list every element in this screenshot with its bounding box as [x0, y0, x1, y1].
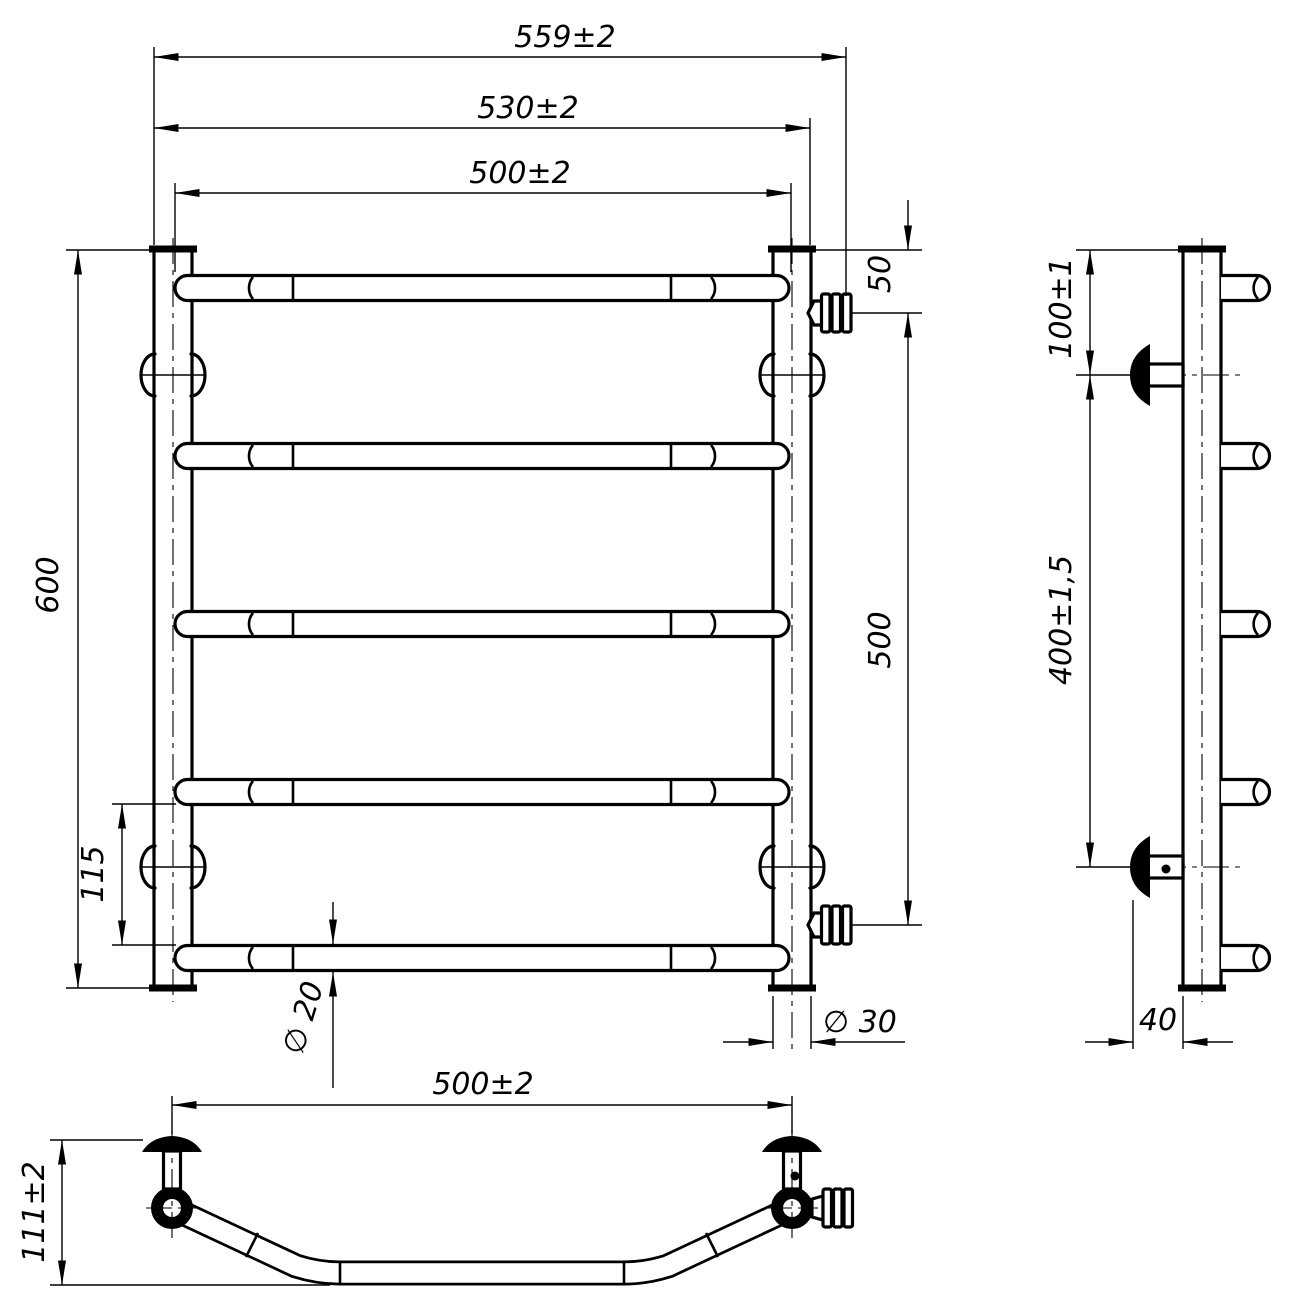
- dim-rung-length: 500±2: [175, 156, 791, 272]
- supply-valve-top-view: [812, 1189, 853, 1227]
- rung-4: [175, 780, 789, 805]
- rung-stub-1: [1221, 276, 1270, 301]
- wall-bracket-bottom: [1130, 836, 1183, 898]
- dim-valve-spacing: 500: [852, 313, 922, 925]
- dim-label-mount-width: 530±2: [477, 91, 578, 126]
- dim-label-bracket-span: 500±2: [432, 1067, 533, 1102]
- dim-post-diameter: ∅ 30: [723, 996, 905, 1049]
- technical-drawing: 559±2 530±2 500±2 600 115: [0, 0, 1300, 1300]
- front-view: [140, 238, 851, 1052]
- dim-label-valve-top-offset: 50: [863, 255, 898, 293]
- dim-label-rung-diameter: ∅ 20: [276, 977, 331, 1058]
- rung-stub-4: [1221, 780, 1270, 805]
- dim-label-post-diameter: ∅ 30: [823, 1005, 897, 1040]
- left-post-bottom-cap: [149, 985, 197, 992]
- dim-label-depth: 111±2: [17, 1161, 52, 1262]
- dim-label-bracket-top-offset: 100±1: [1044, 257, 1079, 358]
- dim-bracket-top-offset: 100±1: [1044, 250, 1179, 375]
- side-post-bottom-cap: [1178, 985, 1226, 992]
- dim-label-valve-spacing: 500: [863, 611, 898, 668]
- rung-1: [175, 276, 789, 301]
- bracket-screw: [1162, 865, 1171, 874]
- rung-stub-2: [1221, 444, 1270, 469]
- right-post-bottom-cap: [768, 985, 816, 992]
- supply-valve-top: [808, 294, 851, 332]
- wall-bracket-top: [1130, 344, 1183, 406]
- dim-label-bracket-depth: 40: [1139, 1003, 1177, 1038]
- dim-label-bottom-gap: 115: [76, 845, 111, 902]
- right-post-top-cap: [768, 246, 816, 253]
- dim-label-bracket-spacing: 400±1,5: [1044, 555, 1079, 685]
- side-post-top-cap: [1178, 246, 1226, 253]
- rung-2: [175, 444, 789, 469]
- supply-valve-bottom: [808, 906, 851, 944]
- dim-label-overall-width: 559±2: [514, 20, 615, 55]
- dim-label-rung-length: 500±2: [469, 156, 570, 191]
- bent-tube: [172, 1208, 792, 1285]
- rung-3: [175, 612, 789, 637]
- rung-stub-5: [1221, 946, 1270, 971]
- dim-label-height: 600: [31, 556, 66, 613]
- rung-stub-3: [1221, 612, 1270, 637]
- dim-bracket-span: 500±2: [172, 1067, 792, 1134]
- dim-rung-diameter: ∅ 20: [276, 902, 333, 1088]
- side-view: [1076, 238, 1270, 1002]
- rung-5: [175, 946, 789, 971]
- drawing-sheet: 559±2 530±2 500±2 600 115: [0, 0, 1300, 1300]
- top-view: [142, 1126, 853, 1285]
- left-post-top-cap: [149, 246, 197, 253]
- dim-bracket-spacing: 400±1,5: [1044, 375, 1090, 867]
